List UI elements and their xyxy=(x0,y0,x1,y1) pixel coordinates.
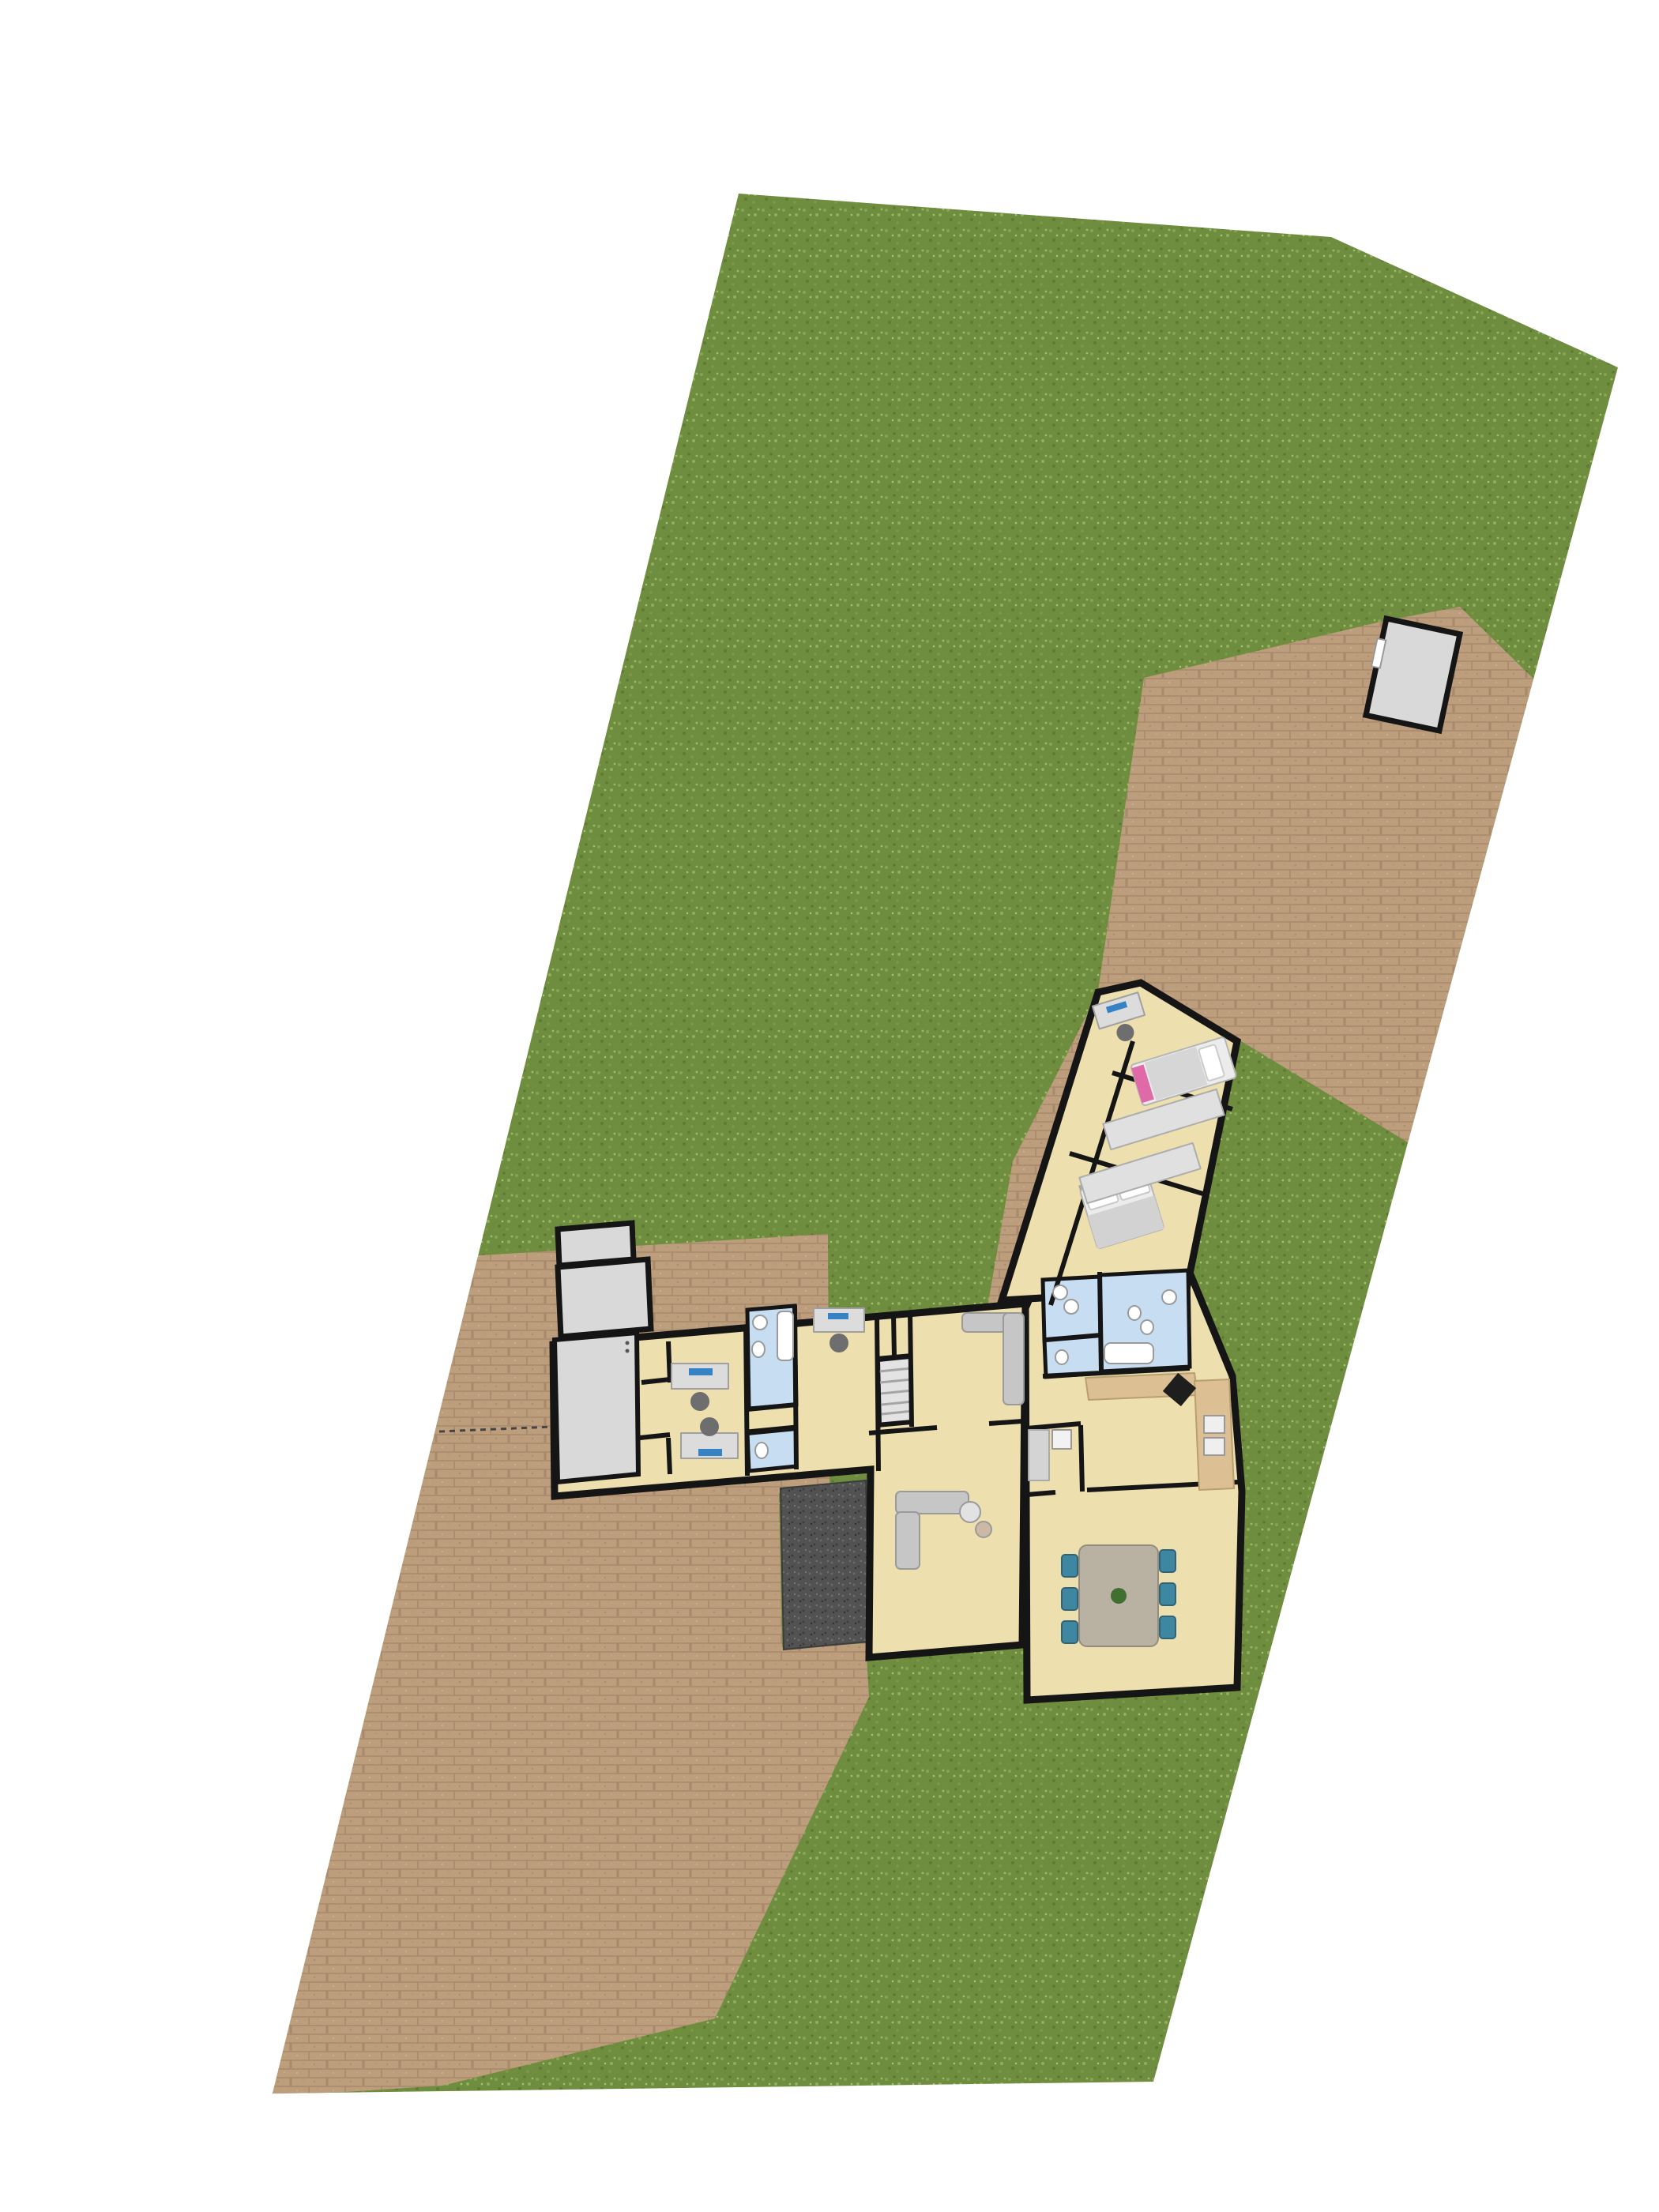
floorplan-canvas xyxy=(0,0,1659,2212)
patio-terrace xyxy=(781,1480,869,1650)
berging-mid-room xyxy=(558,1259,651,1337)
utility-mark xyxy=(626,1349,630,1353)
berging-large-room xyxy=(555,1333,638,1482)
dining-set xyxy=(1062,1545,1176,1646)
plot-terrain xyxy=(237,158,1659,2133)
utility-mark xyxy=(626,1341,630,1345)
